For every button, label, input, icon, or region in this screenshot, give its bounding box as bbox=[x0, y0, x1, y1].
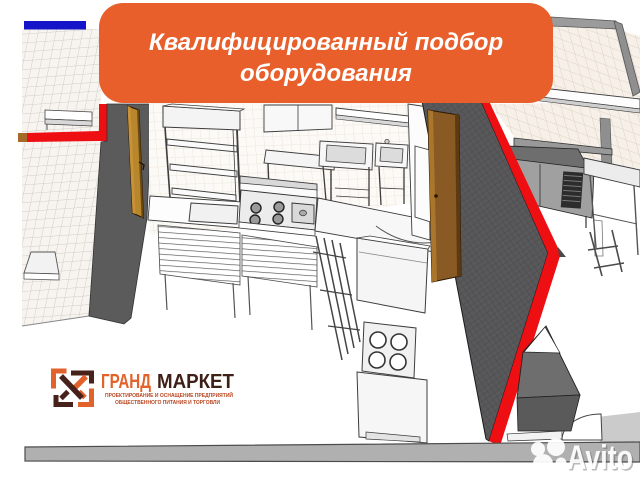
svg-text:ОБЩЕСТВЕННОГО ПИТАНИЯ И ТОРГОВ: ОБЩЕСТВЕННОГО ПИТАНИЯ И ТОРГОВЛИ bbox=[115, 400, 220, 406]
svg-text:МАРКЕТ: МАРКЕТ bbox=[157, 371, 234, 393]
svg-text:Avito: Avito bbox=[567, 439, 633, 477]
svg-text:ГРАНД: ГРАНД bbox=[101, 371, 151, 393]
svg-text:ПРОЕКТИРОВАНИЕ И ОСНАЩЕНИЕ ПРЕ: ПРОЕКТИРОВАНИЕ И ОСНАЩЕНИЕ ПРЕДПРИЯТИЙ bbox=[105, 391, 233, 399]
